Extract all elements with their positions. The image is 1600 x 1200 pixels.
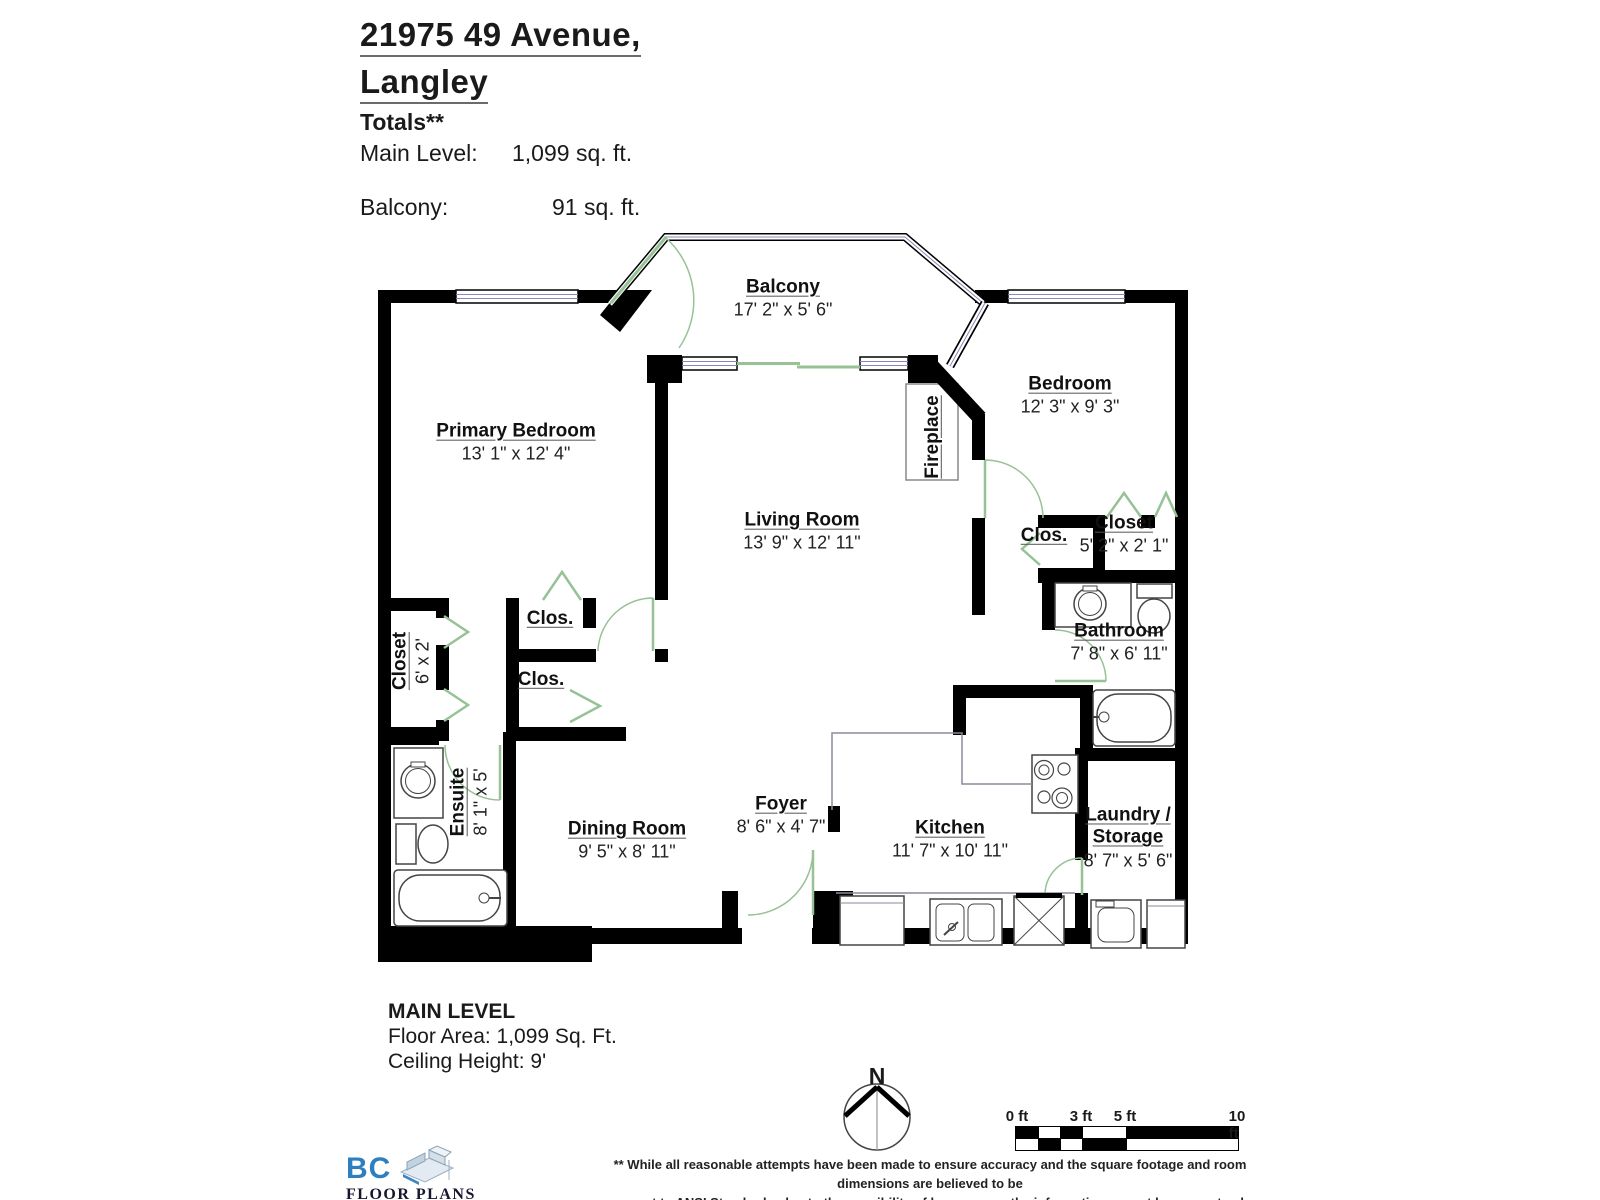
room-label-laundry-storage: Laundry / Storage 8' 7" x 5' 6" [1084, 804, 1173, 871]
hallway-door [598, 598, 653, 651]
kitchen-dishwasher [1014, 893, 1064, 945]
scale-bar-checker [1015, 1126, 1239, 1151]
company-logo: BC FLOOR PLANS [346, 1138, 476, 1200]
ensuite-bathtub [394, 870, 507, 926]
living-room-window-left [682, 357, 737, 370]
room-label-kitchen: Kitchen 11' 7" x 10' 11" [892, 818, 1008, 863]
total-balcony-value: 91 sq. ft. [552, 194, 640, 221]
logo-floor-plans-text: FLOOR PLANS [346, 1186, 476, 1200]
kitchen-stove [1032, 755, 1078, 813]
bathroom-bathtub [1093, 690, 1175, 746]
scale-label-3ft: 3 ft [1070, 1108, 1093, 1125]
room-label-balcony: Balcony 17' 2" x 5' 6" [734, 277, 833, 322]
laundry-door [1045, 858, 1082, 895]
room-label-dining-room: Dining Room 9' 5" x 8' 11" [568, 819, 686, 864]
scale-bar-labels: 0 ft 3 ft 5 ft 10 ft [1015, 1108, 1237, 1126]
bedroom-window [1008, 290, 1125, 303]
scale-bar: 0 ft 3 ft 5 ft 10 ft [1015, 1108, 1237, 1151]
address-line-2: Langley [360, 63, 488, 104]
totals-heading: Totals** [360, 109, 444, 136]
room-label-closet-3: Clos. [1021, 525, 1067, 547]
room-label-primary-bedroom: Primary Bedroom 13' 1" x 12' 4" [436, 421, 595, 466]
room-label-bathroom: Bathroom 7' 8" x 6' 11" [1070, 621, 1167, 666]
laundry-washer [1091, 900, 1141, 948]
kitchen-sink [930, 899, 1002, 945]
floor-plan-drawing [0, 0, 1600, 1200]
total-balcony-label: Balcony: [360, 194, 448, 221]
total-main-level-label: Main Level: [360, 140, 478, 167]
ensuite-vanity-sink [394, 748, 443, 818]
bedroom-angled-window [950, 303, 985, 366]
scale-label-0ft: 0 ft [1006, 1108, 1029, 1125]
room-label-closet-2: Clos. [518, 669, 564, 691]
address-line-1: 21975 49 Avenue, [360, 16, 641, 57]
total-main-level-value: 1,099 sq. ft. [512, 140, 632, 167]
level-name: MAIN LEVEL [388, 1000, 515, 1024]
room-label-closet-left: Closet 6' x 2' [390, 632, 435, 690]
logo-bc-text: BC [346, 1152, 391, 1186]
room-label-foyer: Foyer 8' 6" x 4' 7" [737, 794, 826, 839]
ceiling-height-text: Ceiling Height: 9' [388, 1050, 546, 1074]
room-label-closet-1: Clos. [527, 608, 573, 630]
room-label-living-room: Living Room 13' 9" x 12' 11" [743, 510, 860, 555]
living-room-window-right [860, 357, 908, 370]
floor-area-text: Floor Area: 1,099 Sq. Ft. [388, 1025, 617, 1049]
logo-graphic [395, 1138, 457, 1186]
floor-plan-page: 21975 49 Avenue, Langley Totals** Main L… [0, 0, 1600, 1200]
laundry-dryer [1147, 900, 1185, 948]
scale-label-5ft: 5 ft [1114, 1108, 1137, 1125]
scale-label-10ft: 10 ft [1229, 1108, 1246, 1142]
sliding-door [737, 364, 860, 368]
room-label-ensuite: Ensuite 8' 1" x 5' [448, 768, 493, 837]
room-label-bedroom: Bedroom 12' 3" x 9' 3" [1021, 374, 1120, 419]
disclaimer: ** While all reasonable attempts have be… [610, 1156, 1250, 1200]
compass-north-label: N [869, 1063, 886, 1090]
bedroom-door [985, 460, 1043, 518]
entry-door [748, 850, 813, 915]
page-header: 21975 49 Avenue, Langley [360, 16, 641, 101]
primary-bedroom-window [456, 290, 578, 303]
room-label-closet-right: Closet 5' 2" x 2' 1" [1080, 513, 1169, 558]
room-label-fireplace: Fireplace [922, 395, 944, 478]
kitchen-fridge [840, 896, 904, 945]
compass [844, 1084, 910, 1150]
ensuite-toilet [396, 824, 448, 864]
